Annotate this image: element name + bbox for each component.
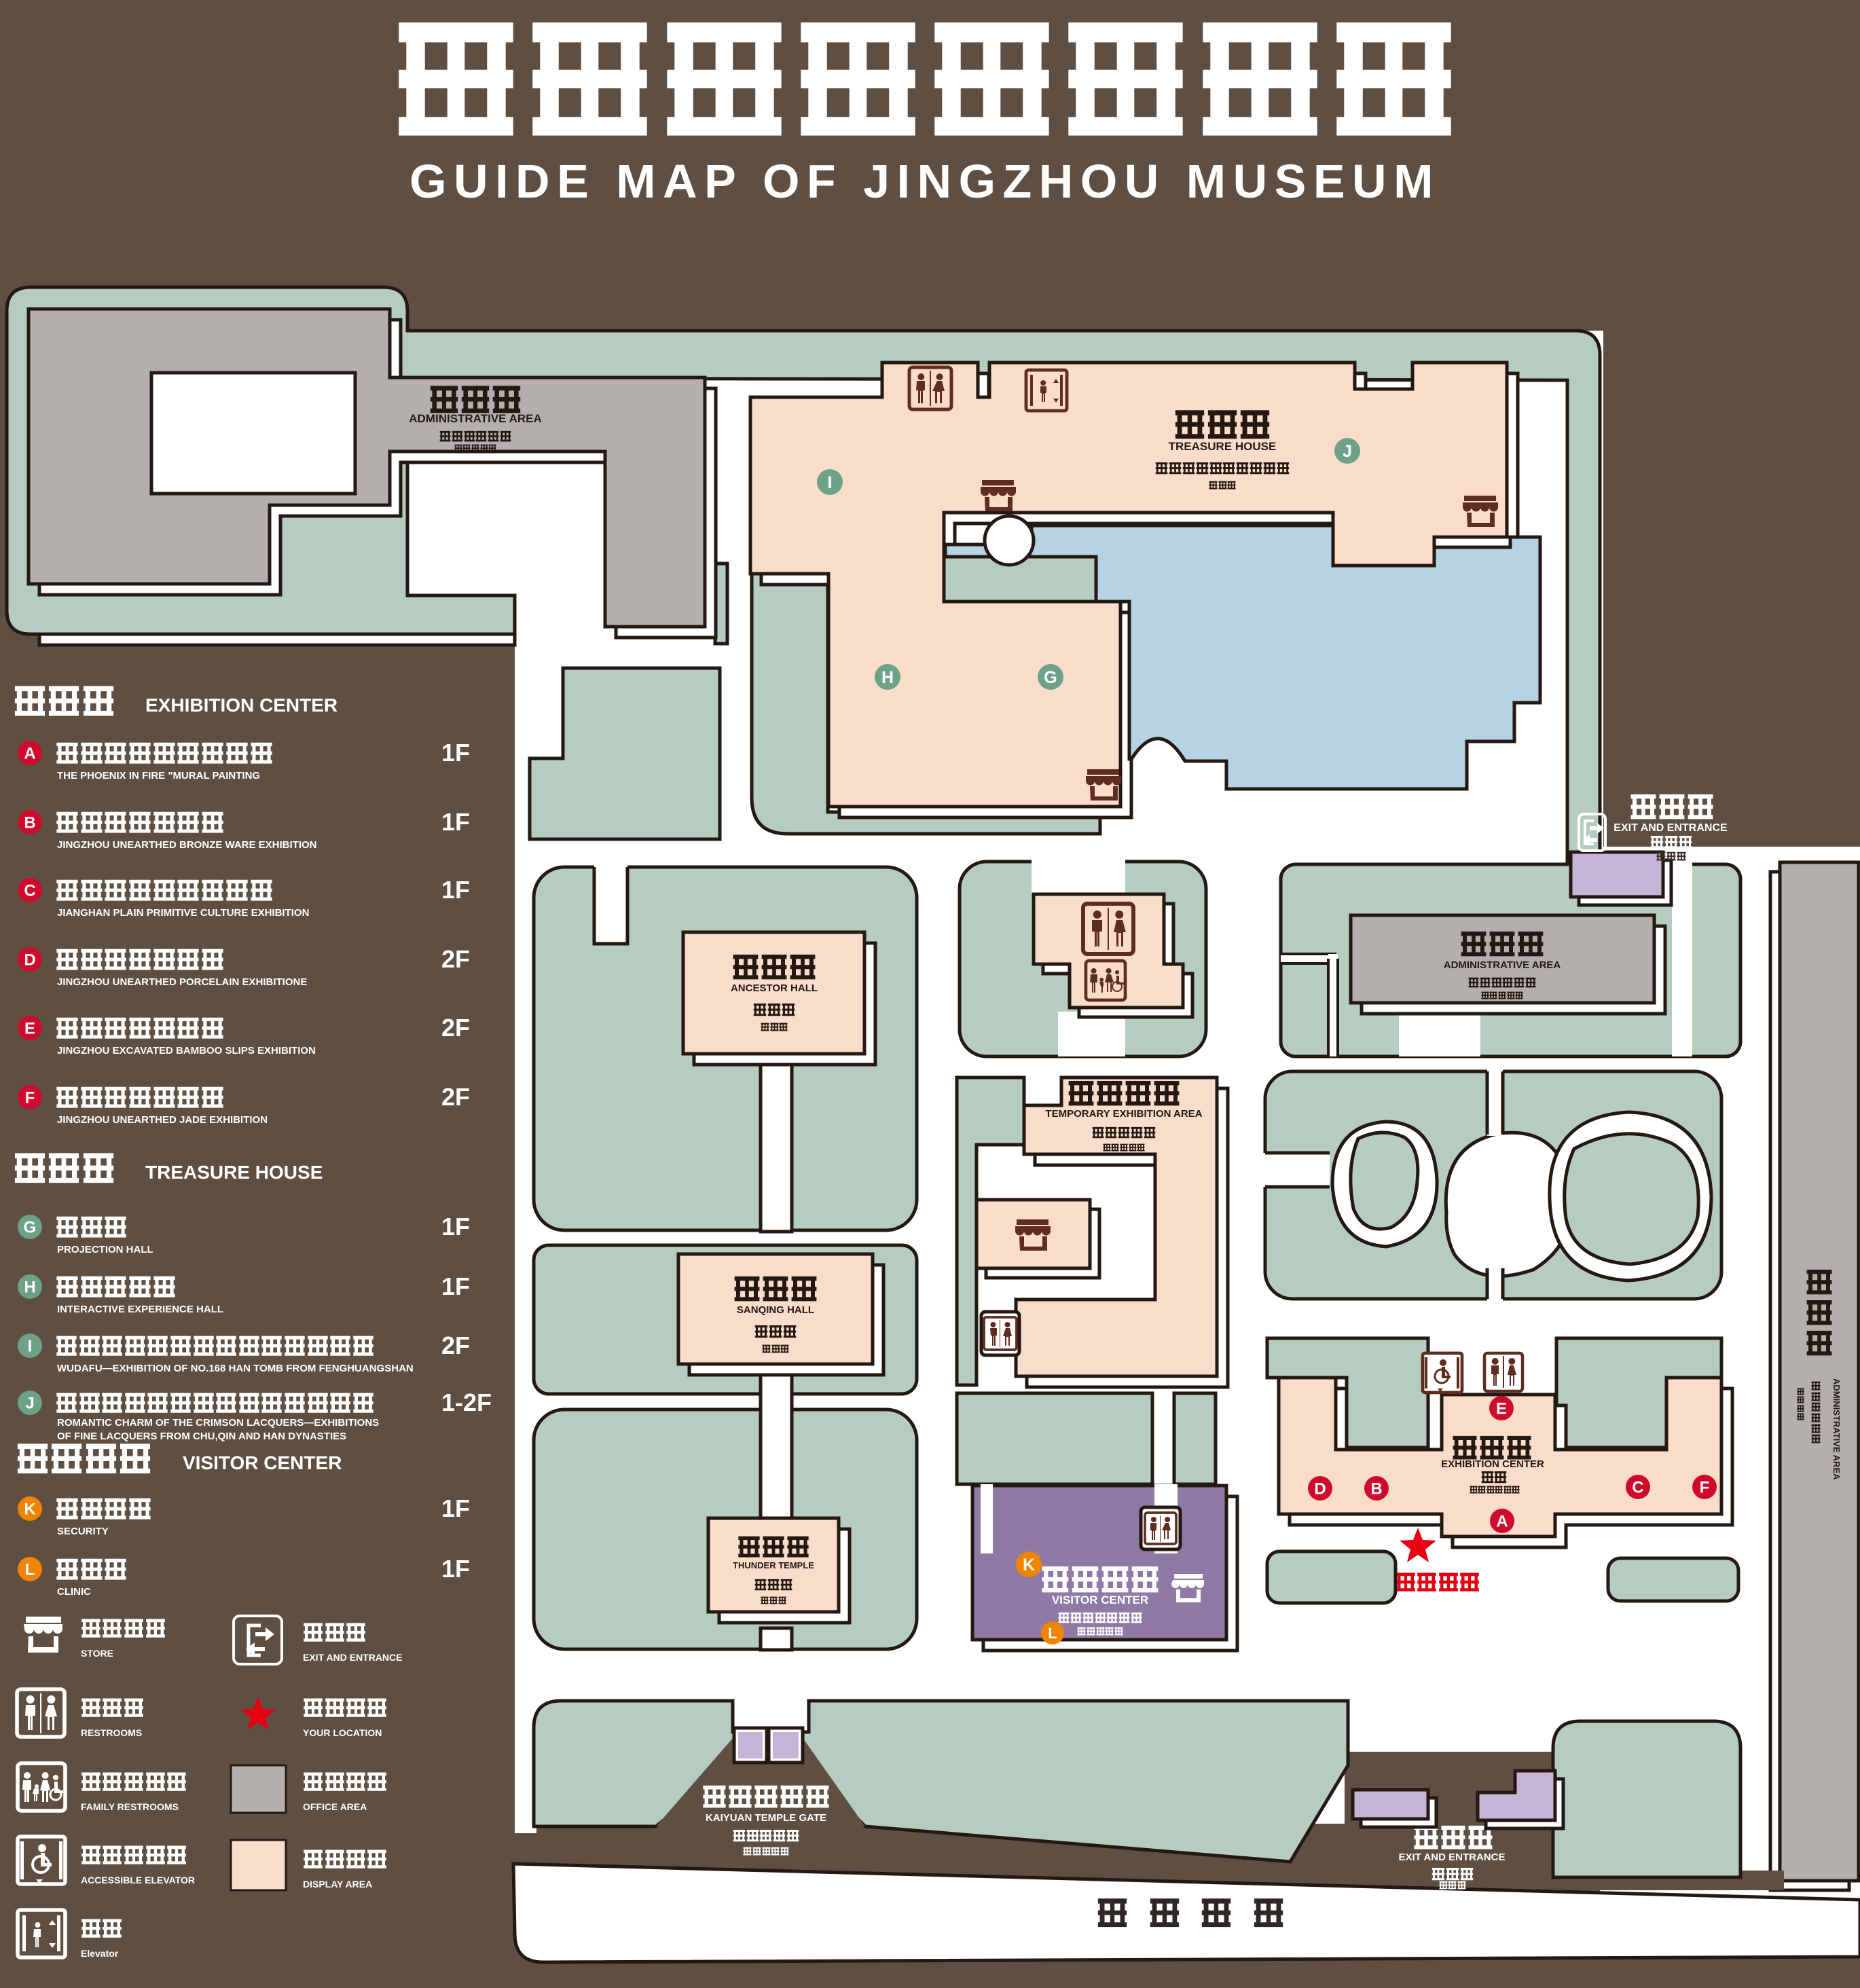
svg-text:JINGZHOU EXCAVATED BAMBOO SLIP: JINGZHOU EXCAVATED BAMBOO SLIPS EXHIBITI… — [57, 1045, 316, 1056]
svg-text:C: C — [24, 882, 35, 900]
svg-text:D: D — [1314, 1480, 1326, 1498]
svg-text:1F: 1F — [441, 1213, 470, 1240]
svg-text:EXHIBITION CENTER: EXHIBITION CENTER — [145, 695, 338, 716]
svg-text:A: A — [1496, 1513, 1508, 1531]
svg-text:1F: 1F — [441, 808, 470, 836]
svg-text:JINGZHOU UNEARTHED JADE EXHIBI: JINGZHOU UNEARTHED JADE EXHIBITION — [57, 1114, 268, 1126]
svg-text:VISITOR CENTER: VISITOR CENTER — [1052, 1594, 1148, 1606]
svg-text:ADMINISTRATIVE AREA: ADMINISTRATIVE AREA — [1831, 1378, 1842, 1480]
svg-text:ADMINISTRATIVE AREA: ADMINISTRATIVE AREA — [409, 412, 542, 425]
svg-text:JIANGHAN PLAIN PRIMITIVE CULTU: JIANGHAN PLAIN PRIMITIVE CULTURE EXHIBIT… — [57, 907, 309, 919]
svg-text:JINGZHOU UNEARTHED PORCELAIN E: JINGZHOU UNEARTHED PORCELAIN EXHIBITIONE — [57, 976, 307, 988]
svg-text:H: H — [881, 668, 894, 687]
svg-text:ROMANTIC CHARM OF THE CRIMSON: ROMANTIC CHARM OF THE CRIMSON LACQUERS—E… — [57, 1417, 379, 1429]
svg-text:JINGZHOU UNEARTHED BRONZE WARE: JINGZHOU UNEARTHED BRONZE WARE EXHIBITIO… — [57, 839, 317, 851]
svg-text:ACCESSIBLE ELEVATOR: ACCESSIBLE ELEVATOR — [81, 1875, 195, 1885]
svg-text:L: L — [1048, 1625, 1057, 1642]
svg-text:CLINIC: CLINIC — [57, 1586, 91, 1598]
svg-text:OFFICE AREA: OFFICE AREA — [303, 1801, 367, 1812]
svg-text:G: G — [1044, 668, 1057, 687]
svg-text:K: K — [24, 1501, 36, 1519]
svg-text:I: I — [828, 473, 833, 492]
svg-text:OF FINE LACQUERS FROM CHU,QIN: OF FINE LACQUERS FROM CHU,QIN AND HAN DY… — [57, 1431, 346, 1442]
svg-text:EXIT AND ENTRANCE: EXIT AND ENTRANCE — [303, 1652, 403, 1663]
svg-text:1F: 1F — [441, 739, 470, 767]
svg-text:YOUR LOCATION: YOUR LOCATION — [303, 1727, 382, 1738]
svg-text:B: B — [24, 814, 35, 832]
svg-text:2F: 2F — [441, 1331, 470, 1359]
svg-text:1F: 1F — [441, 1555, 470, 1583]
svg-text:I: I — [28, 1338, 33, 1356]
svg-text:INTERACTIVE EXPERIENCE HALL: INTERACTIVE EXPERIENCE HALL — [57, 1304, 223, 1315]
svg-text:TREASURE HOUSE: TREASURE HOUSE — [1169, 440, 1277, 453]
svg-text:TEMPORARY EXHIBITION AREA: TEMPORARY EXHIBITION AREA — [1045, 1108, 1202, 1120]
svg-text:WUDAFU—EXHIBITION OF NO.168 HA: WUDAFU—EXHIBITION OF NO.168 HAN TOMB FRO… — [57, 1363, 414, 1374]
svg-text:Elevator: Elevator — [81, 1948, 119, 1959]
svg-text:EXIT AND ENTRANCE: EXIT AND ENTRANCE — [1613, 822, 1728, 834]
svg-text:C: C — [1632, 1479, 1643, 1497]
svg-text:J: J — [1343, 442, 1352, 461]
svg-text:F: F — [25, 1089, 35, 1107]
svg-text:SANQING HALL: SANQING HALL — [737, 1304, 814, 1316]
svg-text:ANCESTOR HALL: ANCESTOR HALL — [731, 982, 818, 994]
svg-text:1F: 1F — [441, 1272, 470, 1300]
svg-text:K: K — [1023, 1556, 1035, 1575]
svg-text:DISPLAY AREA: DISPLAY AREA — [303, 1879, 372, 1890]
svg-text:PROJECTION HALL: PROJECTION HALL — [57, 1244, 153, 1255]
svg-text:2F: 2F — [441, 945, 470, 973]
svg-text:E: E — [24, 1020, 35, 1038]
svg-text:H: H — [24, 1278, 35, 1297]
svg-text:EXIT AND ENTRANCE: EXIT AND ENTRANCE — [1399, 1852, 1506, 1863]
svg-text:GUIDE MAP OF JINGZHOU MUSEUM: GUIDE MAP OF JINGZHOU MUSEUM — [409, 155, 1440, 208]
svg-text:1F: 1F — [441, 876, 470, 904]
svg-text:FAMILY RESTROOMS: FAMILY RESTROOMS — [81, 1801, 179, 1812]
svg-text:E: E — [1496, 1400, 1507, 1418]
svg-text:ADMINISTRATIVE AREA: ADMINISTRATIVE AREA — [1444, 959, 1561, 971]
svg-text:SECURITY: SECURITY — [57, 1526, 109, 1537]
svg-text:KAIYUAN TEMPLE GATE: KAIYUAN TEMPLE GATE — [706, 1812, 826, 1824]
svg-text:2F: 2F — [441, 1014, 470, 1042]
svg-text:A: A — [24, 745, 35, 763]
svg-text:TREASURE HOUSE: TREASURE HOUSE — [145, 1162, 323, 1183]
svg-text:RESTROOMS: RESTROOMS — [81, 1727, 142, 1738]
svg-text:D: D — [24, 951, 35, 970]
svg-text:2F: 2F — [441, 1083, 470, 1111]
svg-text:VISITOR CENTER: VISITOR CENTER — [183, 1452, 342, 1473]
svg-text:G: G — [24, 1219, 37, 1237]
svg-text:THE PHOENIX IN FIRE "MURAL PAI: THE PHOENIX IN FIRE "MURAL PAINTING — [57, 770, 260, 781]
svg-text:1F: 1F — [441, 1494, 470, 1522]
svg-text:STORE: STORE — [81, 1648, 113, 1659]
svg-text:EXHIBITION CENTER: EXHIBITION CENTER — [1441, 1458, 1544, 1470]
svg-text:1-2F: 1-2F — [441, 1388, 492, 1416]
svg-text:F: F — [1700, 1479, 1710, 1497]
svg-text:J: J — [25, 1395, 34, 1413]
svg-text:B: B — [1370, 1480, 1382, 1498]
svg-text:L: L — [25, 1561, 35, 1579]
svg-text:THUNDER TEMPLE: THUNDER TEMPLE — [733, 1560, 814, 1570]
